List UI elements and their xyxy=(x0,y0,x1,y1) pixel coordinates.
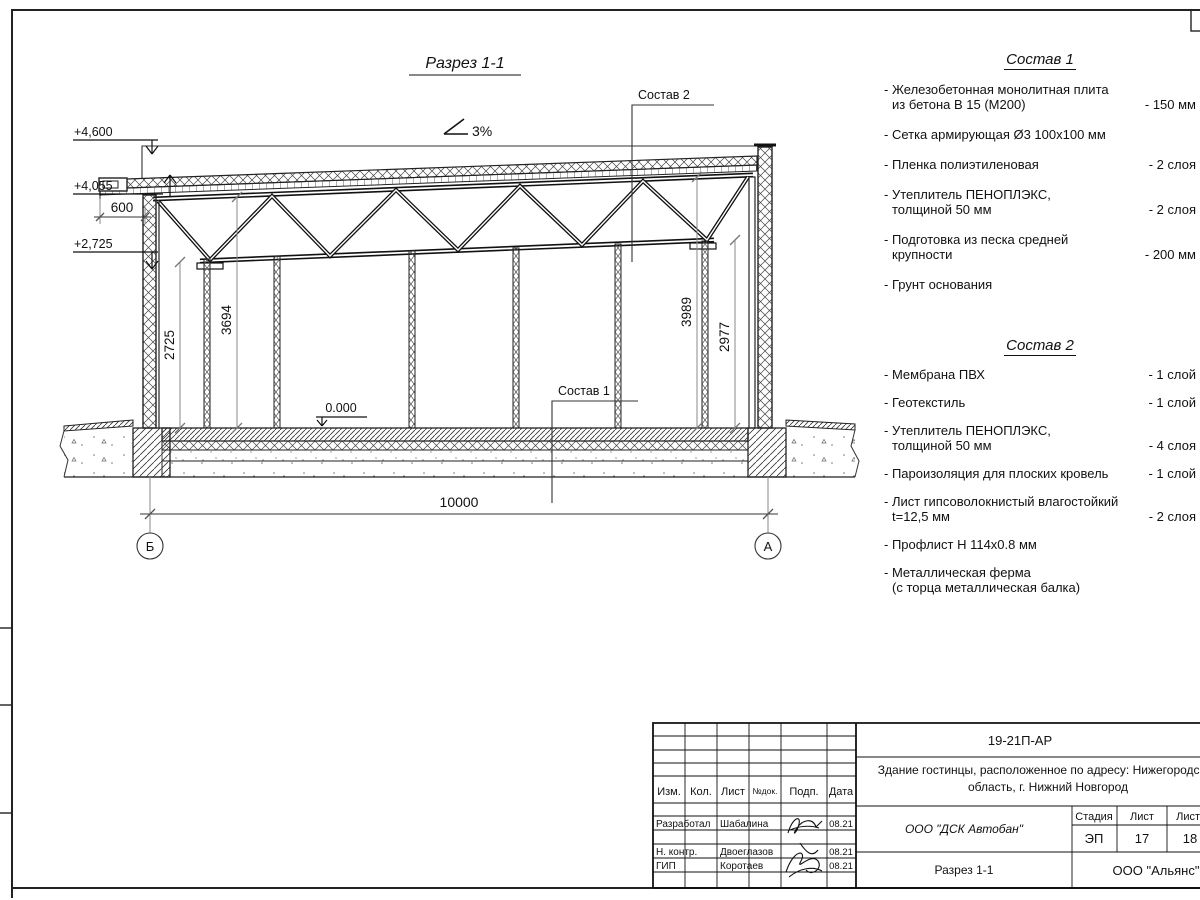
dim-overhang-value: 600 xyxy=(111,200,134,215)
col-ndoc: №док. xyxy=(753,786,778,796)
material-item: - Металлическая ферма(с торца металличес… xyxy=(884,565,1196,595)
material-item: - Геотекстиль - 1 слой xyxy=(884,395,1196,410)
row-name: Коротаев xyxy=(720,861,763,872)
left-wall xyxy=(143,195,159,428)
dim-left-inner: 2725 xyxy=(162,330,177,360)
column xyxy=(702,241,708,428)
col-podp: Подп. xyxy=(789,786,818,798)
level-top-value: +4,600 xyxy=(74,125,113,139)
dim-span-value: 10000 xyxy=(440,494,479,510)
right-ground xyxy=(786,430,855,477)
col-list: Лист xyxy=(721,786,745,798)
floor-slab-band xyxy=(162,428,748,441)
material-item: - Профлист Н 114х0.8 мм xyxy=(884,537,1196,552)
doc-number: 19-21П-АР xyxy=(988,733,1052,748)
level-roof-value: +4,055 xyxy=(74,179,113,193)
axis-right-label: А xyxy=(764,539,773,554)
row-role: Н. контр. xyxy=(656,847,697,858)
sheets-label: Листов xyxy=(1176,811,1200,823)
contractor-name: ООО "Альянс" xyxy=(1113,863,1200,878)
row-name: Двоеглазов xyxy=(720,847,773,858)
material-item: - Железобетонная монолитная плитаиз бето… xyxy=(884,82,1196,112)
object-line2: область, г. Нижний Новгород xyxy=(968,780,1128,794)
right-wall-inner-face xyxy=(749,177,755,428)
stage-label: Стадия xyxy=(1075,811,1113,823)
material-item: - Пароизоляция для плоских кровель - 1 с… xyxy=(884,466,1196,481)
material-item: - Грунт основания xyxy=(884,277,1196,292)
sheet-name: Разрез 1-1 xyxy=(935,863,994,877)
column xyxy=(274,256,280,428)
row-date: 08.21 xyxy=(829,819,853,830)
floor-assembly xyxy=(162,428,748,477)
slope-value: 3% xyxy=(472,123,492,139)
sostav1-title: Состав 1 xyxy=(884,52,1196,67)
material-item: - Мембрана ПВХ - 1 слой xyxy=(884,367,1196,382)
sheet-number: 17 xyxy=(1135,831,1149,846)
row-role: ГИП xyxy=(656,861,676,872)
right-foundation xyxy=(748,428,786,477)
callout2-label: Состав 2 xyxy=(638,88,690,102)
level-zero-value: 0.000 xyxy=(325,401,356,415)
row-date: 08.21 xyxy=(829,847,853,858)
row-role: Разработал xyxy=(656,818,711,830)
dim-right-inner: 2977 xyxy=(717,322,732,352)
col-kol: Кол. xyxy=(690,786,712,798)
material-item: - Утеплитель ПЕНОПЛЭКС,толщиной 50 мм - … xyxy=(884,187,1196,217)
object-line1: Здание гостинцы, расположенное по адресу… xyxy=(878,763,1200,777)
org-name: ООО "ДСК Автобан" xyxy=(905,822,1024,836)
material-item: - Утеплитель ПЕНОПЛЭКС,толщиной 50 мм - … xyxy=(884,423,1196,453)
section-title: Разрез 1-1 xyxy=(425,55,504,72)
sostav2-list: Состав 2 - Мембрана ПВХ - 1 слой - Геоте… xyxy=(884,338,1196,595)
sostav2-title: Состав 2 xyxy=(884,338,1196,353)
column xyxy=(409,251,415,428)
row-date: 08.21 xyxy=(829,861,853,872)
dim-right-outer: 3989 xyxy=(679,297,694,327)
column xyxy=(615,244,621,428)
sheets-total: 18 xyxy=(1183,831,1197,846)
dim-left-outer: 3694 xyxy=(219,304,234,335)
stage-value: ЭП xyxy=(1085,831,1104,846)
row-name: Шабалина xyxy=(720,818,769,830)
col-izm: Изм. xyxy=(657,786,681,798)
axis-left-label: Б xyxy=(146,539,155,554)
left-ground xyxy=(64,431,133,477)
column xyxy=(513,248,519,428)
sheet-label: Лист xyxy=(1130,811,1154,823)
sostav1-list: Состав 1 - Железобетонная монолитная пли… xyxy=(884,52,1196,292)
sand-bed-band xyxy=(162,450,748,461)
column xyxy=(204,259,210,428)
right-wall xyxy=(749,145,776,428)
material-item: - Сетка армирующая Ø3 100х100 мм xyxy=(884,127,1196,142)
base-soil-band xyxy=(162,461,748,477)
level-truss-value: +2,725 xyxy=(74,237,113,251)
callout1-label: Состав 1 xyxy=(558,384,610,398)
material-item: - Пленка полиэтиленовая - 2 слоя xyxy=(884,157,1196,172)
material-item: - Лист гипсоволокнистый влагостойкийt=12… xyxy=(884,494,1196,524)
col-data: Дата xyxy=(829,786,854,798)
left-foundation xyxy=(133,428,170,477)
material-item: - Подготовка из песка среднейкрупности -… xyxy=(884,232,1196,262)
floor-insulation-band xyxy=(162,441,748,450)
